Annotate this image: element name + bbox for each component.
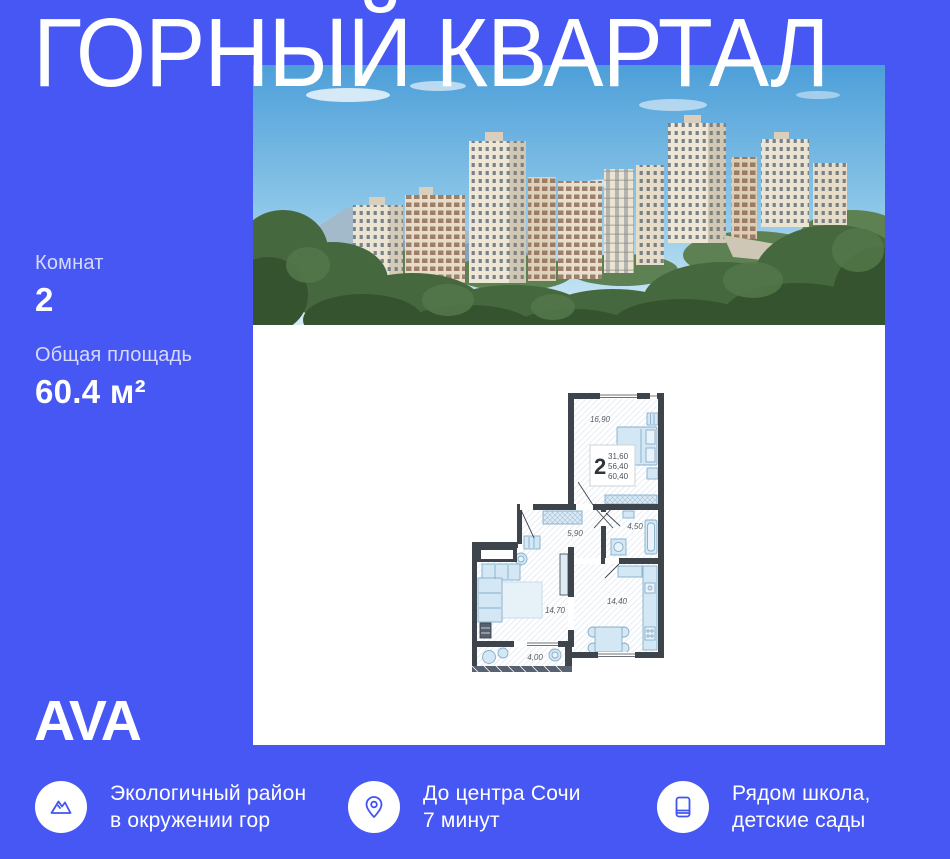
feature-line1: Рядом школа, [732, 780, 871, 807]
room-label-living: 14,70 [545, 606, 566, 615]
feature-text: Рядом школа, детские сады [732, 780, 871, 834]
balcony-chair [498, 648, 508, 658]
tower [528, 177, 556, 281]
feature-line1: До центра Сочи [423, 780, 581, 807]
tower [813, 163, 847, 225]
tower [761, 132, 809, 227]
feature-line2: в окружении гор [110, 807, 306, 834]
bath-sink [623, 511, 634, 518]
room-label-balcony: 4,00 [527, 653, 543, 662]
floor-plan: 16,90 5,90 4,50 14,70 14,40 4,00 2 31,60… [455, 380, 685, 680]
area-fact: Общая площадь 60.4 м² [35, 344, 192, 411]
stove [645, 627, 655, 640]
room-label-bathroom: 4,50 [627, 522, 643, 531]
room-label-bedroom: 16,90 [590, 415, 611, 424]
bookshelf [480, 623, 491, 638]
plan-stat-box: 2 31,60 56,40 60,40 [590, 445, 635, 486]
stat-total-area: 60,40 [608, 472, 629, 481]
tower [636, 165, 664, 265]
feature-bubble [657, 781, 709, 833]
feature-line2: 7 минут [423, 807, 581, 834]
listing-ad-page: ГОРНЫЙ КВАРТАЛ [0, 0, 950, 859]
radiator [647, 413, 658, 425]
tv-unit [560, 554, 568, 595]
feature-line1: Экологичный район [110, 780, 306, 807]
book-icon [668, 792, 698, 822]
rooms-label: Комнат [35, 252, 104, 275]
fridge [618, 566, 642, 577]
feature-line2: детские сады [732, 807, 871, 834]
room-label-hallway: 5,90 [567, 529, 583, 538]
hall-closet [543, 511, 582, 524]
brand-logo: AVA [34, 688, 140, 754]
tower-tall-right [668, 115, 726, 243]
feature-text: До центра Сочи 7 минут [423, 780, 581, 834]
area-value: 60.4 м² [35, 373, 192, 411]
feature-text: Экологичный район в окружении гор [110, 780, 306, 834]
feature-school: Рядом школа, детские сады [657, 780, 871, 834]
feature-bubble [35, 781, 87, 833]
feature-location: До центра Сочи 7 минут [348, 780, 581, 834]
tower [604, 169, 634, 273]
tower [731, 157, 757, 239]
shoe-cabinet [524, 536, 540, 549]
wardrobe [605, 495, 657, 504]
dresser [647, 468, 658, 479]
feature-eco: Экологичный район в окружении гор [35, 780, 306, 834]
location-pin-icon [359, 792, 389, 822]
mountain-icon [46, 792, 76, 822]
balcony-chair [483, 651, 496, 664]
tower [558, 181, 602, 279]
stat-living-area: 31,60 [608, 452, 629, 461]
stat-rooms: 2 [594, 454, 606, 479]
stat-usable-area: 56,40 [608, 462, 629, 471]
tower-tall-center [469, 132, 526, 283]
rooms-fact: Комнат 2 [35, 252, 104, 319]
area-label: Общая площадь [35, 344, 192, 367]
feature-bubble [348, 781, 400, 833]
page-title: ГОРНЫЙ КВАРТАЛ [33, 2, 828, 104]
rooms-value: 2 [35, 281, 104, 319]
room-label-kitchen: 14,40 [607, 597, 628, 606]
